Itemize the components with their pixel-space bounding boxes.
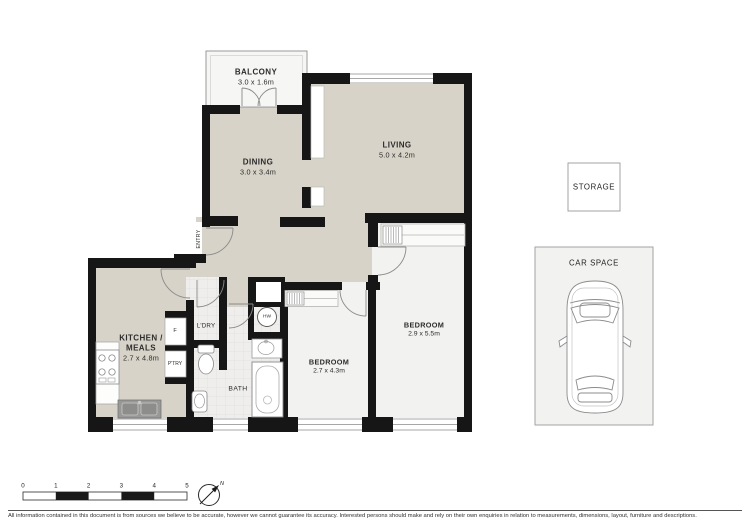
toilet: [198, 345, 214, 374]
storage-label: STORAGE: [573, 183, 615, 192]
living-window: [350, 73, 433, 84]
scale-tick-3: 3: [120, 483, 123, 490]
bedroom1-dims: 2.7 x 4.3m: [313, 368, 345, 375]
bedroom1-wardrobe: [285, 291, 338, 307]
kitchen-label-2: MEALS: [126, 344, 156, 353]
scale-tick-2: 2: [87, 483, 90, 490]
laundry-sink: [192, 391, 207, 412]
floor-plan-drawing: [0, 0, 750, 530]
linen-shelf: [256, 282, 281, 302]
disclaimer-text: All information contained in this docume…: [8, 513, 748, 519]
bath-label: BATH: [228, 386, 247, 393]
bedroom2-label: BEDROOM: [404, 321, 444, 330]
pantry-label: P'TRY: [168, 361, 182, 367]
vanity-sink: [252, 339, 282, 358]
car-space-label: CAR SPACE: [569, 259, 619, 268]
bedroom1-window: [298, 418, 362, 432]
dining-dims: 3.0 x 3.4m: [240, 168, 276, 177]
bedroom1-label: BEDROOM: [309, 358, 349, 367]
kitchen-label-1: KITCHEN /: [119, 334, 163, 343]
fridge-label: F: [173, 328, 176, 334]
scale-tick-0: 0: [21, 483, 24, 490]
kitchen-window: [113, 418, 167, 432]
cooktop: [96, 350, 119, 384]
car-space-box: [535, 247, 653, 425]
car-icon: [559, 281, 631, 413]
north-label: N: [220, 481, 224, 487]
laundry-label: L'DRY: [197, 323, 216, 330]
scale-tick-5: 5: [185, 483, 188, 490]
hot-water-label: HW: [263, 315, 271, 320]
footer-divider: [8, 510, 742, 511]
living-dims: 5.0 x 4.2m: [379, 151, 415, 160]
entry-label: ENTRY: [196, 230, 202, 249]
bedroom2-wardrobe: [381, 224, 465, 246]
compass-icon: [199, 485, 220, 506]
scale-tick-4: 4: [152, 483, 155, 490]
kitchen-dims: 2.7 x 4.8m: [123, 354, 159, 363]
floorplan-page: BALCONY 3.0 x 1.6m DINING 3.0 x 3.4m LIV…: [0, 0, 750, 530]
bathtub: [252, 362, 283, 417]
living-label: LIVING: [382, 141, 411, 150]
bedroom2-dims: 2.9 x 5.5m: [408, 331, 440, 338]
bath-window: [213, 418, 248, 432]
bedroom2-window: [393, 418, 457, 432]
balcony-label: BALCONY: [235, 68, 277, 77]
dining-label: DINING: [243, 158, 273, 167]
scale-bar: [23, 492, 187, 500]
bath-entry-floor: [227, 275, 248, 307]
kitchen-sink: [118, 400, 161, 418]
balcony-dims: 3.0 x 1.6m: [238, 78, 274, 87]
scale-tick-1: 1: [54, 483, 57, 490]
